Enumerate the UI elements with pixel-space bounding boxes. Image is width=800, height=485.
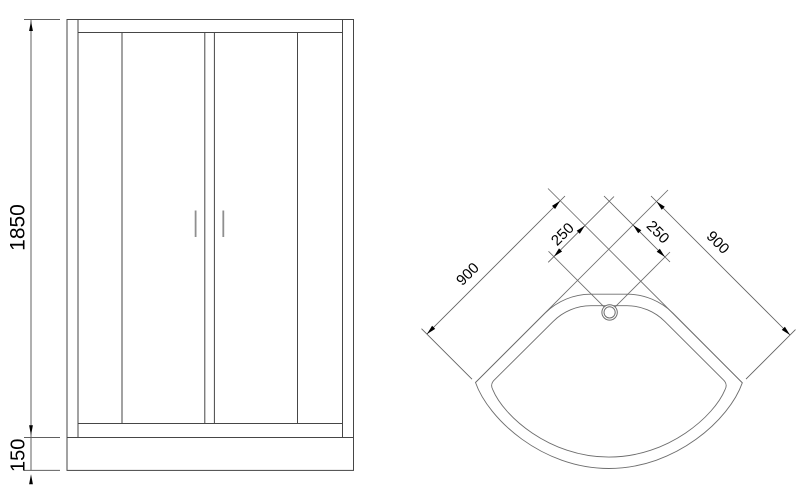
svg-text:150: 150: [7, 439, 29, 472]
svg-text:1850: 1850: [7, 204, 30, 251]
